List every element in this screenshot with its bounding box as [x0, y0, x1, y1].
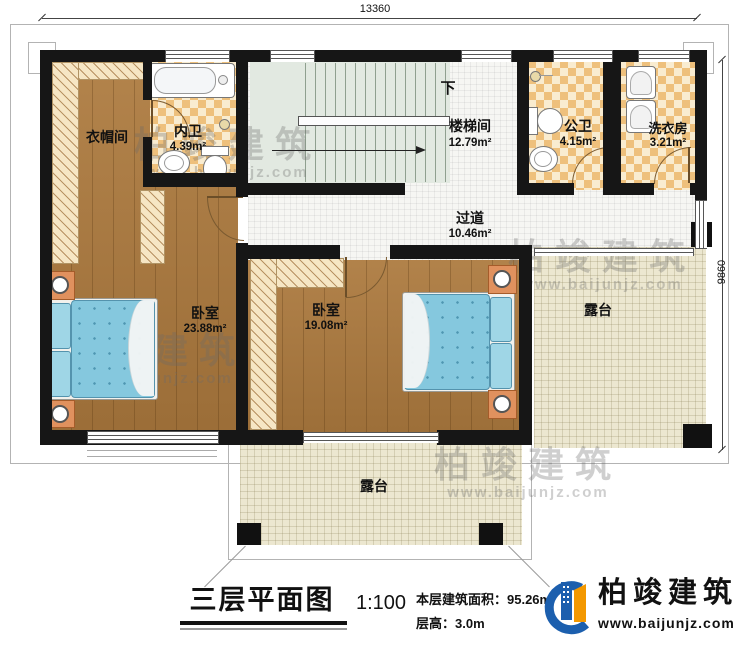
stair-treads-lower: [305, 126, 450, 182]
floor-height-text: 层高：3.0m: [416, 613, 485, 632]
nightstand-knob: [493, 395, 511, 413]
door-leaf-bedroom2: [345, 257, 347, 297]
room-area-laundry: 3.21m²: [640, 137, 696, 150]
wall-top: [40, 50, 165, 62]
window-top-laundry: [638, 50, 690, 62]
wall-bedroom2-top: [390, 245, 532, 259]
nightstand-knob: [51, 405, 69, 423]
stair-down-label: 下: [436, 81, 460, 98]
plan-scale: 1:100: [350, 592, 412, 614]
window-sill-line: [87, 450, 217, 451]
column: [683, 424, 712, 448]
dimension-top-label: 13360: [345, 3, 405, 15]
washing-machine: [626, 66, 656, 99]
room-label-bedroom2: 卧室: [299, 303, 353, 318]
room-label-cloakroom: 衣帽间: [62, 130, 152, 145]
stair-direction-arrow: [416, 146, 426, 154]
room-area-bath-inner: 4.39m²: [158, 141, 218, 154]
window-top-bath-public: [553, 50, 613, 62]
dimension-top-line: [42, 18, 697, 19]
wall-bedroom2-bottom: [236, 430, 303, 445]
room-label-bath-public: 公卫: [550, 119, 606, 134]
door-leaf-laundry: [688, 147, 690, 183]
wall-bedrooms-divider: [236, 243, 248, 445]
floor-terrace-right: [534, 247, 706, 448]
plan-title: 三层平面图: [182, 586, 342, 616]
stair-direction-line: [272, 150, 418, 151]
sink-basin: [164, 155, 184, 171]
pillow: [490, 343, 512, 389]
nightstand-knob: [493, 270, 511, 288]
room-label-terrace-bottom: 露台: [354, 479, 394, 494]
sink-basin: [534, 151, 552, 167]
nightstand: [488, 390, 517, 419]
balustrade-corridor-terrace: [534, 248, 694, 256]
bed-sheet: [128, 300, 154, 396]
wall-bedroom2-top: [236, 245, 340, 259]
title-underline-thin: [180, 628, 347, 630]
wall-right: [695, 50, 707, 200]
nightstand-knob: [51, 276, 69, 294]
room-area-corridor: 10.46m²: [438, 228, 502, 241]
window-top-stairwell: [270, 50, 315, 62]
leader-diagonal: [204, 546, 246, 588]
wall-bath-public-left: [517, 50, 529, 195]
nightstand: [488, 265, 517, 294]
bathtub-faucet: [218, 75, 228, 85]
room-label-stairwell: 楼梯间: [435, 119, 505, 134]
shower-head: [530, 71, 541, 82]
room-label-bedroom1: 卧室: [178, 306, 232, 321]
wall-bath-inner-left: [143, 62, 152, 100]
pillow: [490, 297, 512, 342]
window-top-bath-inner: [165, 50, 230, 62]
window-top-hall: [461, 50, 512, 62]
bathtub: [149, 63, 235, 98]
wall-laundry-bottom: [690, 183, 707, 195]
pillow: [49, 351, 71, 397]
sink: [529, 146, 558, 172]
window-bedroom1-bottom: [87, 431, 219, 444]
room-area-stairwell: 12.79m²: [435, 137, 505, 150]
window-sill-line: [87, 456, 217, 457]
room-label-laundry: 洗衣房: [640, 122, 696, 136]
room-area-bedroom2: 19.08m²: [293, 320, 359, 333]
stair-railing: [298, 116, 450, 126]
stair-treads-upper: [305, 63, 450, 116]
wall-bedroom2-bottom: [437, 430, 532, 445]
title-underline-thick: [180, 621, 347, 625]
wall-top: [228, 50, 270, 62]
closet-bedroom2-left: [250, 258, 277, 430]
shower-arm: [539, 75, 553, 76]
wall-top: [313, 50, 461, 62]
wall-bath-public-bottom: [608, 183, 654, 195]
column: [479, 523, 503, 545]
dimension-right-label: 9860: [716, 250, 728, 294]
wall-bath-public-bottom: [517, 183, 574, 195]
room-label-terrace-right: 露台: [578, 303, 618, 318]
closet-left: [52, 62, 79, 264]
closet-top: [78, 62, 144, 80]
room-area-bedroom1: 23.88m²: [172, 323, 238, 336]
shower-head: [219, 119, 230, 130]
room-area-bath-public: 4.15m²: [550, 136, 606, 149]
wall-stair-bottom: [248, 183, 405, 195]
logo-url: www.baijunjz.com: [598, 616, 746, 631]
bathtub-basin: [154, 67, 216, 94]
floor-area-text: 本层建筑面积：95.26m²: [416, 589, 555, 608]
wall-bath-inner-bottom: [143, 173, 248, 187]
wall-left: [40, 50, 52, 445]
room-label-bath-inner: 内卫: [158, 124, 218, 139]
logo-icon: [540, 574, 594, 645]
floor-plan-canvas: 13360 9860: [0, 0, 750, 645]
sliding-door-bedroom2-terrace: [303, 432, 439, 443]
pillow: [49, 303, 71, 349]
washer-lid: [630, 71, 652, 95]
logo-text: 柏竣建筑: [598, 578, 746, 610]
closet-bedroom2-top: [276, 258, 344, 288]
column: [237, 523, 261, 545]
room-label-corridor: 过道: [442, 211, 498, 226]
window-right-corridor: [695, 200, 707, 249]
wall-suite-corridor-divider: [236, 50, 248, 197]
closet-middle: [140, 190, 165, 264]
wall-bedroom2-right: [519, 245, 532, 443]
company-logo: 柏竣建筑 www.baijunjz.com: [540, 574, 745, 640]
